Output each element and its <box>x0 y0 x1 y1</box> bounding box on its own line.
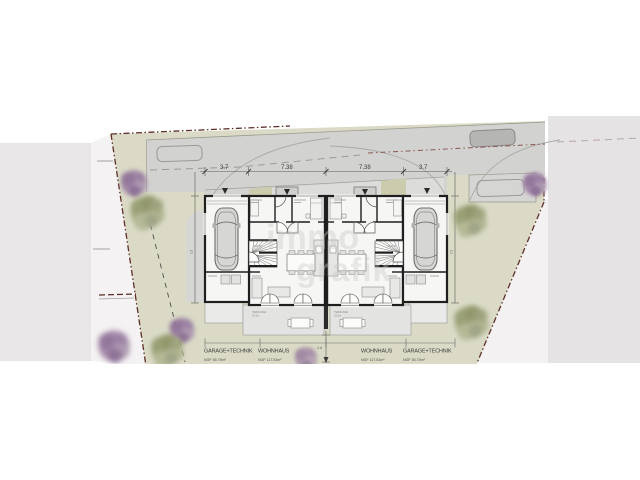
svg-text:7.38: 7.38 <box>359 165 371 171</box>
svg-text:GARAGE+TECHNIK: GARAGE+TECHNIK <box>403 349 452 355</box>
svg-text:GARAGE+TECHNIK: GARAGE+TECHNIK <box>204 349 253 355</box>
svg-text:NGF 55.75m²: NGF 55.75m² <box>204 358 227 362</box>
svg-text:13: 13 <box>449 249 454 254</box>
svg-text:NGF 117.53m²: NGF 117.53m² <box>361 358 385 362</box>
svg-text:WOHNHAUS: WOHNHAUS <box>258 349 290 355</box>
svg-text:1.4: 1.4 <box>317 346 322 350</box>
svg-text:7.38: 7.38 <box>281 165 293 171</box>
svg-text:TERRASSE: TERRASSE <box>334 310 348 314</box>
svg-text:NGF 55.75m²: NGF 55.75m² <box>403 358 426 362</box>
svg-text:32.5m: 32.5m <box>252 314 259 318</box>
svg-text:3.7: 3.7 <box>419 165 428 171</box>
svg-text:WOHNHAUS: WOHNHAUS <box>361 349 393 355</box>
svg-text:13: 13 <box>189 249 194 254</box>
svg-text:3.7: 3.7 <box>220 165 229 171</box>
svg-text:32.5m: 32.5m <box>334 314 341 318</box>
svg-text:NGF 117.53m²: NGF 117.53m² <box>258 358 282 362</box>
svg-text:grafik: grafik <box>296 251 392 288</box>
svg-text:TERRASSE: TERRASSE <box>252 310 266 314</box>
